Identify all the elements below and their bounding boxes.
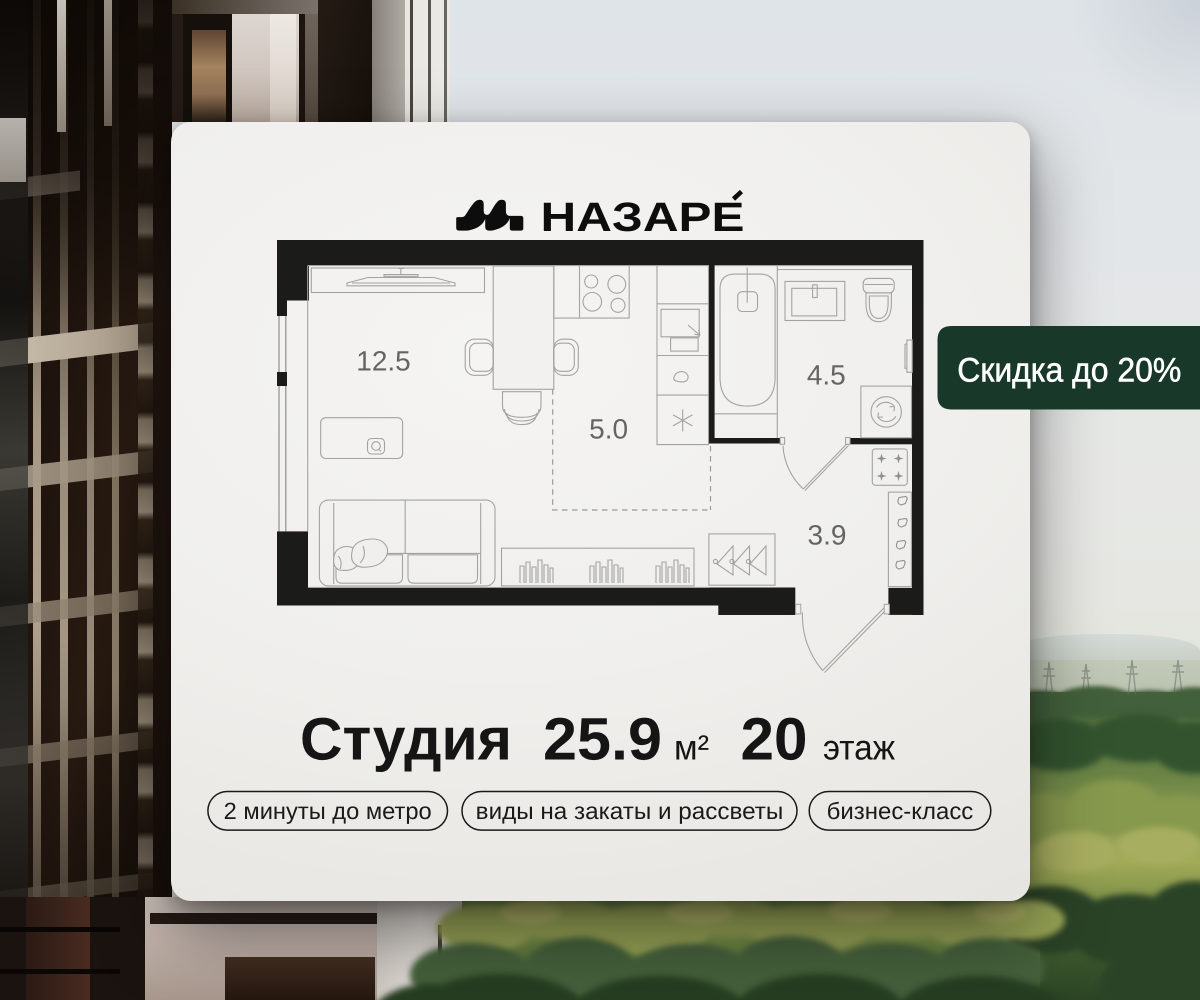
svg-text:5.0: 5.0: [589, 413, 628, 444]
svg-text:м²: м²: [674, 728, 709, 767]
svg-text:виды на закаты и рассветы: виды на закаты и рассветы: [476, 798, 784, 824]
svg-text:2 минуты до метро: 2 минуты до метро: [224, 798, 432, 824]
svg-text:НАЗАРЕ: НАЗАРЕ: [541, 194, 745, 240]
svg-text:Скидка до 20%: Скидка до 20%: [957, 352, 1181, 390]
svg-text:3.9: 3.9: [808, 520, 847, 551]
svg-text:4.5: 4.5: [807, 360, 846, 391]
svg-text:этаж: этаж: [823, 728, 896, 767]
svg-text:12.5: 12.5: [356, 346, 411, 377]
svg-text:Студия: Студия: [300, 705, 512, 772]
svg-text:бизнес-класс: бизнес-класс: [827, 798, 974, 824]
svg-text:20: 20: [741, 705, 808, 772]
svg-text:25.9: 25.9: [543, 705, 662, 772]
